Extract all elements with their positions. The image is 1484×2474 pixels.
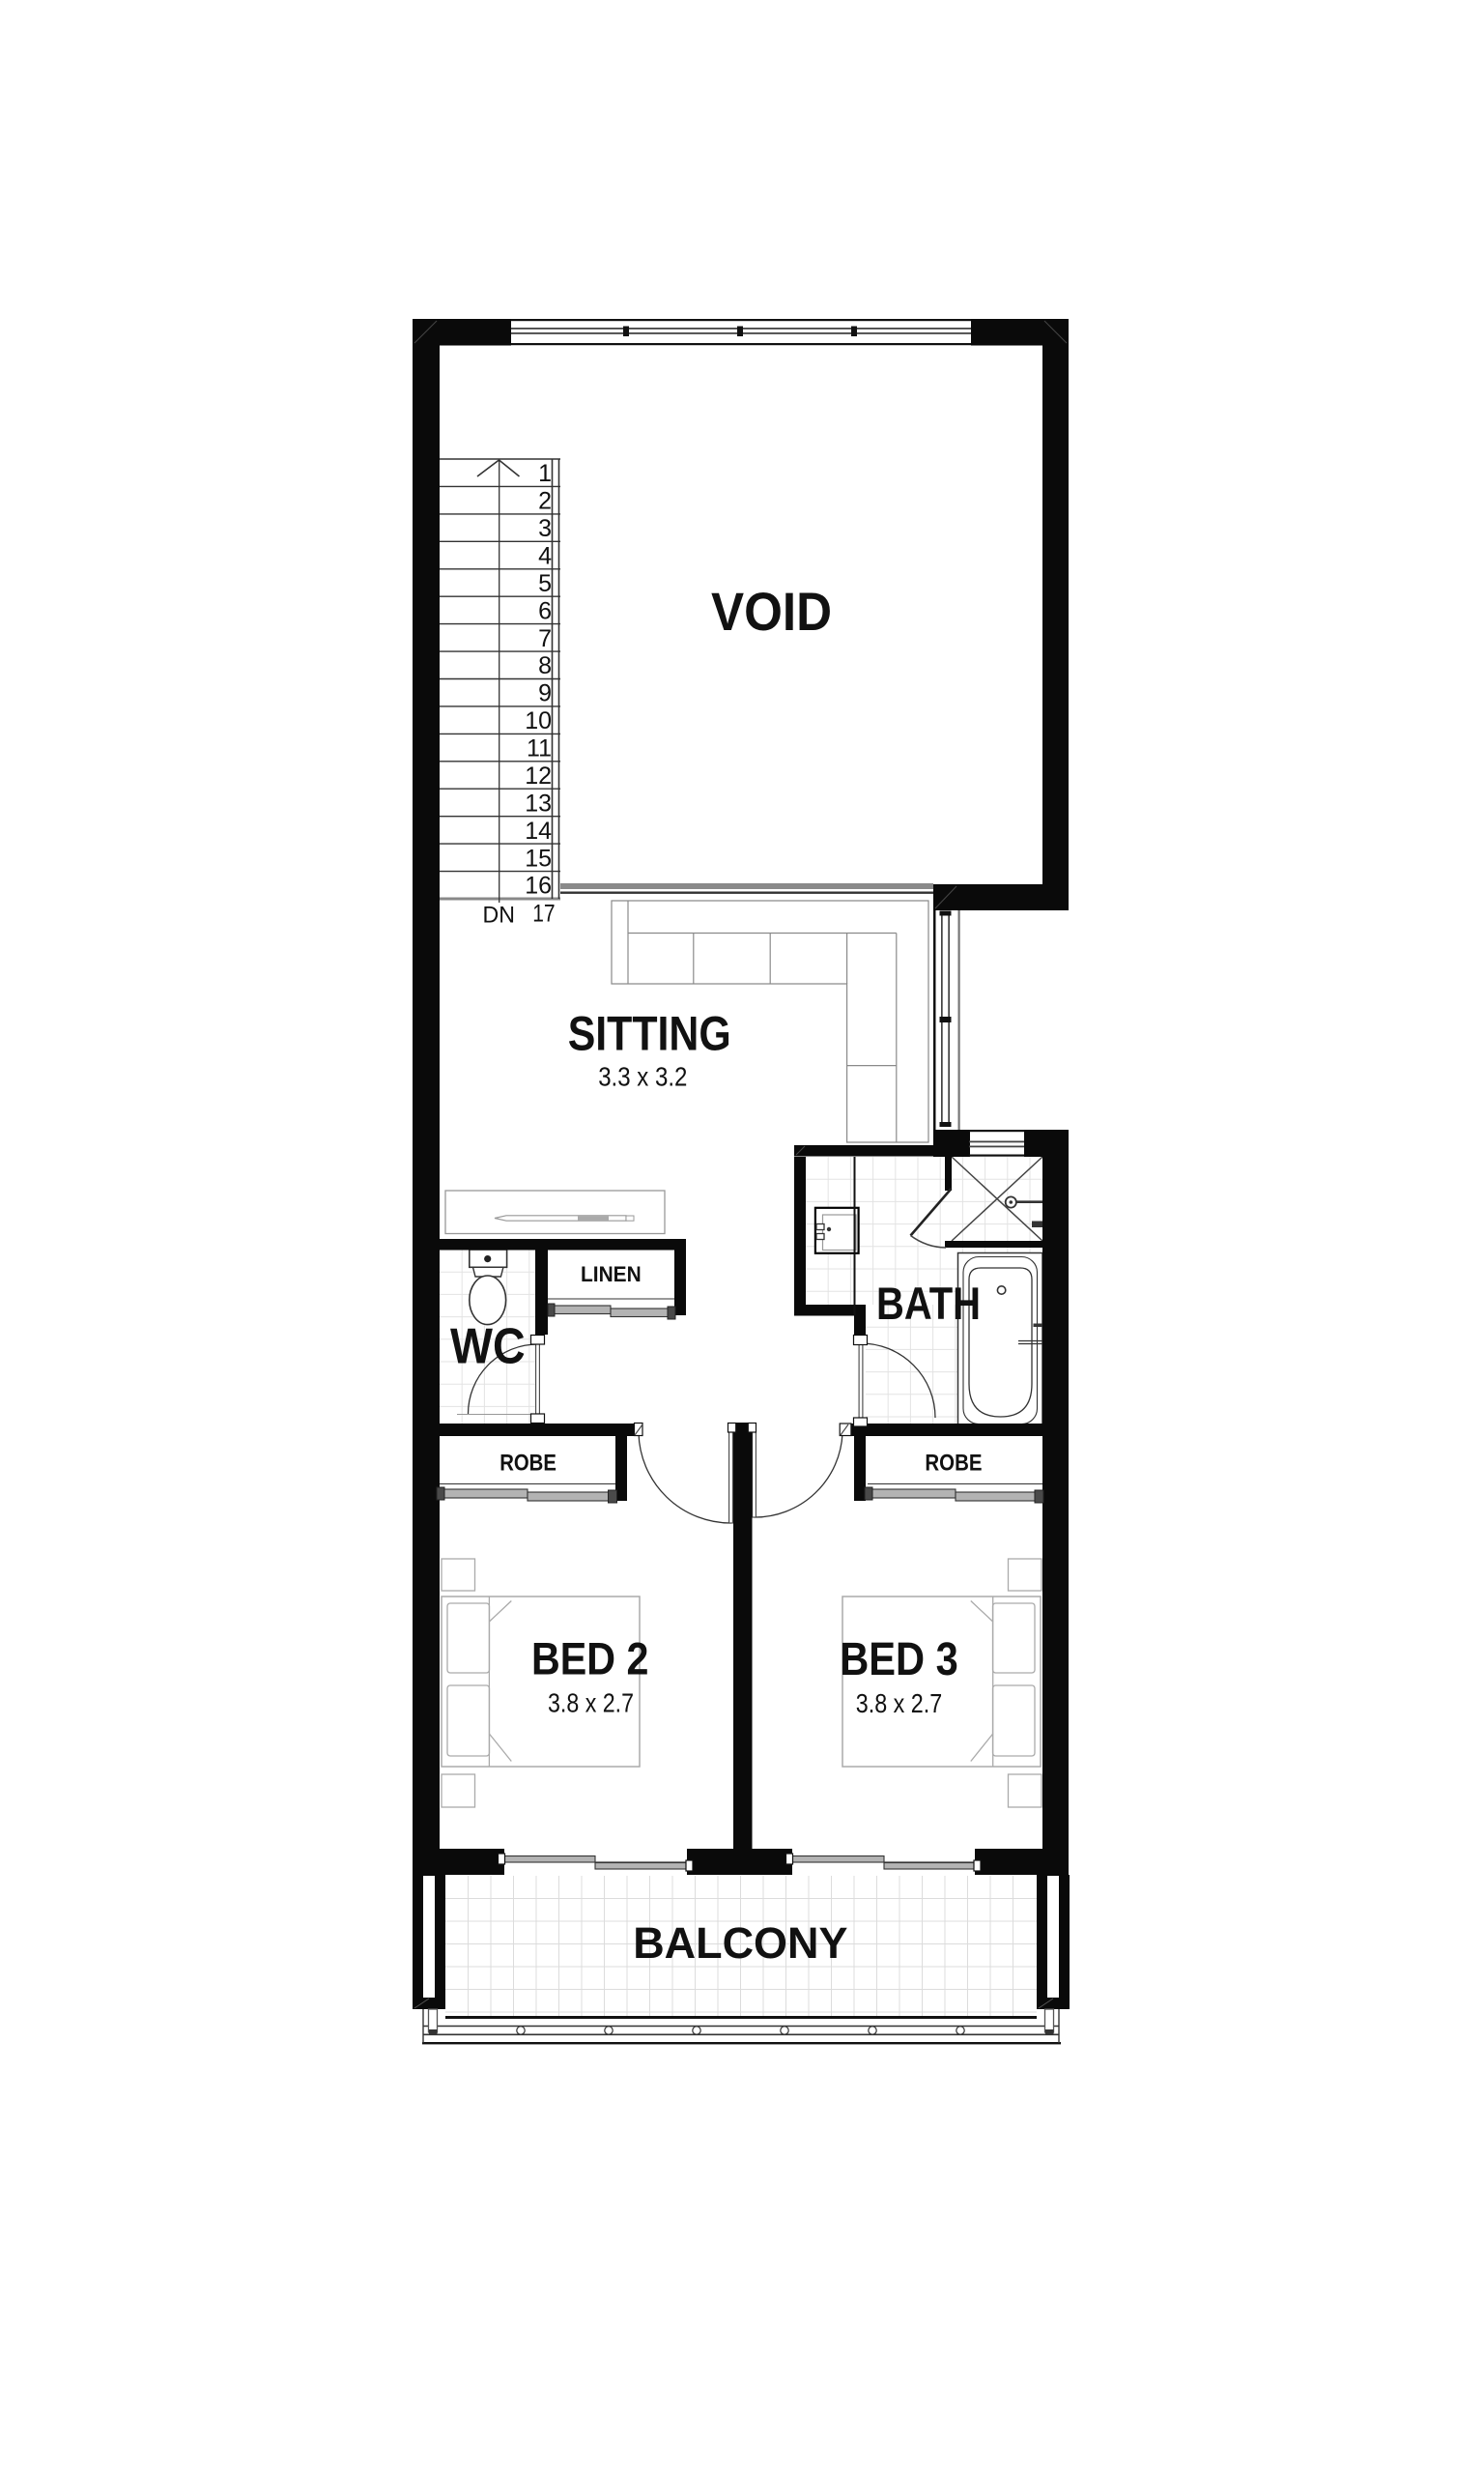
- svg-text:6: 6: [538, 597, 552, 624]
- svg-text:3: 3: [538, 515, 552, 542]
- svg-text:4: 4: [538, 543, 552, 570]
- svg-text:LINEN: LINEN: [581, 1262, 642, 1286]
- svg-text:BALCONY: BALCONY: [633, 1918, 847, 1968]
- svg-text:5: 5: [538, 570, 552, 597]
- svg-text:BATH: BATH: [876, 1278, 981, 1329]
- svg-text:2: 2: [538, 488, 552, 515]
- svg-text:WC: WC: [450, 1318, 526, 1374]
- svg-text:7: 7: [538, 625, 552, 652]
- svg-text:16: 16: [525, 873, 552, 900]
- svg-text:8: 8: [538, 652, 552, 679]
- svg-text:14: 14: [525, 818, 552, 845]
- svg-text:10: 10: [525, 707, 552, 734]
- svg-text:DN: DN: [483, 903, 515, 929]
- svg-text:17: 17: [532, 900, 555, 927]
- svg-text:11: 11: [527, 735, 552, 762]
- svg-text:BED 3: BED 3: [840, 1634, 958, 1685]
- svg-text:3.3 x 3.2: 3.3 x 3.2: [598, 1062, 687, 1092]
- svg-text:3.8 x 2.7: 3.8 x 2.7: [548, 1687, 634, 1717]
- svg-text:9: 9: [538, 680, 552, 707]
- svg-text:ROBE: ROBE: [925, 1451, 982, 1477]
- svg-text:13: 13: [525, 790, 552, 817]
- svg-text:15: 15: [525, 845, 552, 872]
- svg-text:BED 2: BED 2: [531, 1632, 648, 1683]
- svg-text:1: 1: [538, 460, 552, 487]
- svg-text:3.8 x 2.7: 3.8 x 2.7: [856, 1688, 942, 1718]
- svg-text:SITTING: SITTING: [568, 1006, 731, 1060]
- svg-text:12: 12: [525, 762, 552, 790]
- svg-text:VOID: VOID: [711, 581, 832, 642]
- svg-text:ROBE: ROBE: [499, 1451, 556, 1477]
